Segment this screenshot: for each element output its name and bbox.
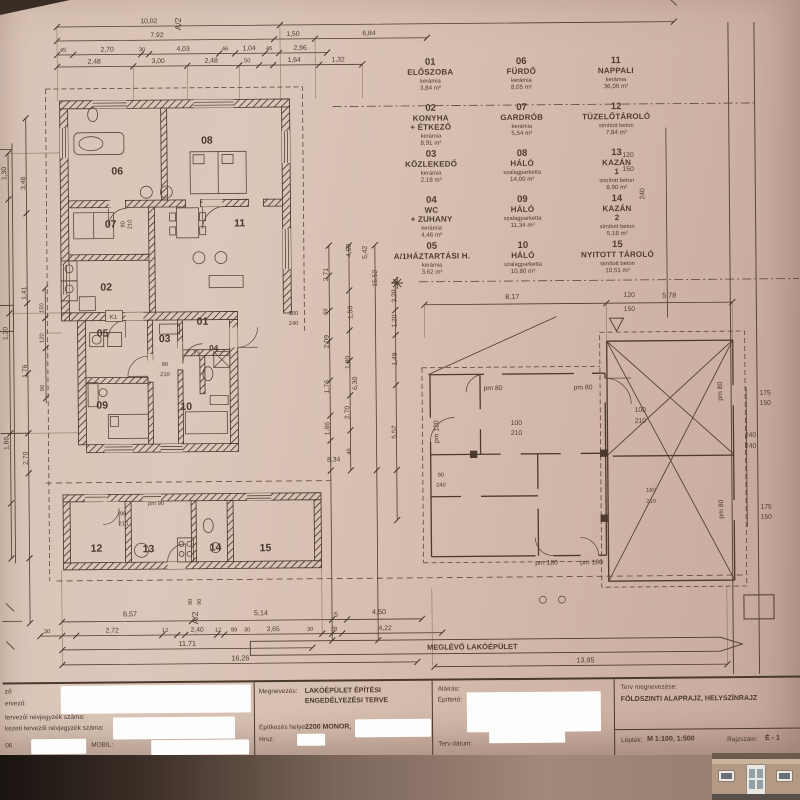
titleblock-rule [615, 727, 800, 730]
svg-text:1,50: 1,50 [286, 31, 300, 38]
svg-text:5,14: 5,14 [254, 608, 268, 617]
svg-text:2,96: 2,96 [293, 45, 307, 52]
svg-text:1,41: 1,41 [21, 286, 28, 300]
svg-text:1,04: 1,04 [242, 45, 256, 52]
hrsz-label: Hrsz: [259, 736, 274, 743]
svg-text:6,30: 6,30 [352, 377, 359, 391]
svg-text:16,26: 16,26 [231, 653, 249, 662]
svg-text:pm 80: pm 80 [718, 500, 725, 519]
svg-text:5,52: 5,52 [391, 425, 398, 439]
svg-text:12: 12 [91, 543, 103, 555]
drawing-title-label: Terv megnevezése: [621, 684, 677, 691]
svg-text:2,72: 2,72 [106, 627, 120, 634]
svg-text:210: 210 [160, 372, 170, 378]
scanned-floorplan-photo: { "schedule": { "rooms": [ {"num":"01","… [0, 0, 800, 800]
svg-text:45: 45 [60, 48, 67, 54]
project-name-line1: LAKÓÉPÜLET ÉPÍTÉSI [305, 687, 381, 695]
svg-text:30: 30 [44, 629, 51, 635]
svg-text:11,71: 11,71 [179, 639, 197, 648]
existing-building-label: MEGLÉVŐ LAKÓÉPÜLET [427, 642, 518, 652]
redaction-box [113, 716, 235, 739]
door-pane [749, 780, 755, 789]
designer-line4: kezeti tervezői névjegyzék száma: [5, 725, 104, 733]
project-name-line2: ENGEDÉLYEZÉSI TERVE [305, 697, 388, 705]
redaction-box [355, 719, 431, 738]
svg-text:15: 15 [260, 542, 272, 554]
svg-text:90: 90 [121, 221, 127, 228]
svg-text:3,00: 3,00 [152, 58, 166, 65]
svg-text:5,78: 5,78 [662, 291, 676, 300]
svg-text:14: 14 [210, 542, 222, 554]
svg-text:210: 210 [511, 430, 523, 437]
schedule-cell-09: 09HÁLÓszalagparketta11,34 m² [479, 195, 565, 242]
schedule-cell-01: 01ELŐSZOBAkerámia3,84 m² [382, 57, 478, 104]
svg-text:12: 12 [215, 628, 222, 634]
svg-text:pm 120: pm 120 [433, 420, 440, 443]
drawing-title-value: FÖLDSZINTI ALAPRAJZ, HELYSZÍNRAJZ [621, 695, 757, 703]
existing-building-band: MEGLÉVŐ LAKÓÉPÜLET [250, 637, 742, 655]
svg-text:8,17: 8,17 [505, 292, 519, 301]
existing-roof-diagonals [607, 340, 735, 581]
svg-text:7,92: 7,92 [150, 32, 164, 39]
redaction-box [489, 728, 565, 744]
redaction-box [31, 739, 86, 754]
redaction-box [467, 691, 601, 732]
svg-text:6,57: 6,57 [123, 609, 137, 618]
svg-text:150: 150 [624, 306, 636, 313]
plan-date-label: Terv dátum: [438, 740, 472, 747]
title-block: ző ervező: tervezői névjegyzék száma: ke… [3, 675, 800, 763]
scale-label: Lépték: [621, 737, 642, 744]
svg-text:04: 04 [209, 344, 219, 353]
svg-text:11: 11 [234, 217, 245, 229]
client-label: Építtető: [438, 696, 462, 703]
left-edge-marks [0, 143, 30, 649]
svg-text:28: 28 [331, 627, 338, 633]
svg-text:150: 150 [39, 303, 45, 313]
svg-text:08: 08 [201, 135, 213, 147]
schedule-cell-12: 12TÜZELŐTÁROLÓsimított beton7,84 m² [565, 102, 668, 149]
schedule-cell-13: 13KAZÁN1simított beton8,90 m² [565, 148, 668, 195]
site-photo-inset [712, 753, 800, 800]
svg-text:5,42: 5,42 [362, 245, 369, 259]
svg-text:240: 240 [436, 483, 446, 489]
door-pane [757, 769, 763, 778]
svg-text:175: 175 [759, 390, 771, 397]
svg-text:1,30: 1,30 [1, 167, 8, 181]
svg-text:02: 02 [100, 282, 112, 294]
scale-value: M 1:100, 1:500 [647, 735, 695, 742]
svg-text:69: 69 [323, 308, 329, 315]
schedule-cell-03: 03KÖZLEKEDŐkerámia2,18 m² [383, 149, 479, 196]
schedule-cell-10: 10HÁLÓszalagparketta10,80 m² [480, 241, 566, 288]
svg-text:05: 05 [97, 328, 109, 340]
svg-text:90: 90 [438, 473, 445, 479]
photo-window-left [718, 770, 735, 782]
svg-text:K1: K1 [110, 315, 118, 321]
svg-text:10,02: 10,02 [140, 18, 157, 25]
schedule-cell-04: 04WC+ ZUHANYkerámia4,46 m² [383, 195, 479, 242]
svg-text:240: 240 [289, 321, 299, 327]
svg-text:2,71: 2,71 [323, 268, 330, 282]
schedule-cell-05: 05A/1HÁZTARTÁSI H.kerámia3,62 m² [384, 241, 480, 288]
svg-text:4,50: 4,50 [372, 607, 386, 616]
svg-text:pm 180: pm 180 [535, 560, 558, 567]
designer-line1: ző [5, 688, 12, 695]
svg-text:2,40: 2,40 [191, 627, 205, 634]
schedule-cell-02: 02KONYHA+ ÉTKEZŐkerámia8,91 m² [383, 103, 479, 150]
svg-text:2,48: 2,48 [205, 58, 219, 65]
schedule-cell-14: 14KAZÁN2simított beton5,18 m² [565, 194, 668, 241]
door-pane [757, 780, 763, 789]
designer-line3: tervezői névjegyzék száma: [5, 714, 85, 722]
svg-text:30: 30 [307, 627, 314, 633]
existing-door-arcs [430, 373, 633, 604]
svg-text:07: 07 [105, 218, 117, 230]
svg-text:2,09: 2,09 [324, 335, 331, 349]
table-surface [0, 755, 800, 800]
schedule-cell-06: 06FÜRDŐkerámia8,05 m² [478, 57, 564, 104]
svg-text:90: 90 [120, 511, 127, 517]
svg-text:13: 13 [143, 543, 155, 555]
svg-text:pm 180: pm 180 [580, 559, 603, 566]
svg-text:100: 100 [511, 420, 523, 427]
drawing-number-label: Rajzszám: [727, 736, 757, 743]
svg-text:2,70: 2,70 [344, 406, 351, 420]
schedule-column-1: 01ELŐSZOBAkerámia3,84 m² 02KONYHA+ ÉTKEZ… [382, 57, 480, 288]
svg-text:240: 240 [745, 443, 757, 450]
svg-text:210: 210 [118, 521, 128, 527]
svg-text:180: 180 [646, 488, 656, 494]
svg-text:175: 175 [760, 504, 772, 511]
svg-text:15,52: 15,52 [372, 269, 379, 286]
svg-text:46: 46 [347, 448, 353, 455]
svg-text:1,20: 1,20 [3, 327, 10, 341]
svg-text:06: 06 [111, 165, 123, 177]
svg-text:210: 210 [635, 418, 647, 425]
redaction-box [151, 739, 249, 755]
svg-text:1,86: 1,86 [324, 422, 331, 436]
svg-text:2,70: 2,70 [23, 451, 30, 465]
svg-text:1,20: 1,20 [391, 314, 398, 328]
svg-text:A/2: A/2 [173, 17, 183, 30]
site-label: Építkezés helye: [259, 724, 307, 731]
titleblock-project-cell: Megnevezés: LAKÓÉPÜLET ÉPÍTÉSI ENGEDÉLYE… [255, 681, 434, 760]
drawing-area: MEGLÉVŐ LAKÓÉPÜLET 10,02 7,92 1,50 6,84 … [0, 0, 800, 760]
schedule-cell-15: 15NYITOTT TÁROLÓsimított beton10,51 m² [566, 240, 669, 287]
photo-entry-door [746, 764, 766, 795]
svg-text:150: 150 [761, 514, 773, 521]
svg-text:6,84: 6,84 [362, 30, 376, 37]
svg-text:30: 30 [139, 47, 146, 53]
schedule-cell-07: 07GARDRÓBkerámia5,54 m² [479, 103, 565, 150]
svg-text:12: 12 [162, 628, 169, 634]
redaction-box [297, 734, 325, 746]
svg-text:30: 30 [244, 627, 251, 633]
svg-text:210: 210 [646, 499, 656, 505]
svg-text:pm 90: pm 90 [148, 501, 164, 507]
designer-line5a: 06 [5, 742, 12, 749]
svg-text:pm 80: pm 80 [717, 382, 724, 401]
svg-text:240: 240 [745, 432, 757, 439]
svg-text:1,49: 1,49 [392, 352, 399, 366]
schedule-column-2: 06FÜRDŐkerámia8,05 m² 07GARDRÓBkerámia5,… [478, 57, 566, 288]
svg-text:3,65: 3,65 [267, 626, 281, 633]
svg-text:4,50: 4,50 [346, 244, 353, 258]
window-glass [779, 773, 790, 779]
svg-text:1,32: 1,32 [332, 56, 346, 63]
redaction-box [61, 684, 251, 714]
drawing-number-value: É - 1 [765, 735, 780, 742]
room-name: ELŐSZOBA [382, 68, 478, 78]
svg-text:1,80: 1,80 [345, 356, 352, 370]
svg-text:13,95: 13,95 [576, 655, 594, 664]
svg-text:pm 80: pm 80 [484, 385, 503, 392]
svg-text:46: 46 [222, 46, 229, 52]
svg-text:100: 100 [635, 407, 647, 414]
schedule-cell-11: 11NAPPALIkerámia36,09 m² [564, 56, 667, 103]
svg-text:100: 100 [289, 311, 299, 317]
svg-text:2,70: 2,70 [100, 46, 114, 53]
svg-text:3,20: 3,20 [391, 289, 398, 303]
svg-text:120: 120 [40, 333, 46, 343]
titleblock-signature-cell: Aláírás: Építtető: Terv dátum: [433, 679, 616, 758]
svg-text:09: 09 [96, 400, 108, 412]
svg-text:90: 90 [162, 362, 169, 368]
window-glass [721, 773, 732, 779]
svg-text:1,64: 1,64 [288, 57, 302, 64]
titleblock-drawing-cell: Terv megnevezése: FÖLDSZINTI ALAPRAJZ, H… [615, 677, 800, 756]
svg-text:A/2: A/2 [190, 611, 200, 624]
svg-text:1,50: 1,50 [347, 306, 354, 320]
svg-text:210: 210 [128, 219, 134, 229]
svg-text:pm 80: pm 80 [574, 384, 593, 391]
schedule-cell-08: 08HÁLÓszalagparketta14,00 m² [479, 149, 565, 196]
room-schedule: 01ELŐSZOBAkerámia3,84 m² 02KONYHA+ ÉTKEZ… [382, 56, 669, 288]
svg-text:90: 90 [197, 599, 203, 605]
schedule-column-3: 11NAPPALIkerámia36,09 m² 12TÜZELŐTÁROLÓs… [564, 56, 669, 287]
door-pane [749, 769, 755, 778]
svg-text:3,48: 3,48 [20, 176, 27, 190]
svg-text:10: 10 [180, 401, 192, 413]
svg-text:8,34: 8,34 [327, 457, 341, 464]
titleblock-designer-cell: ző ervező: tervezői névjegyzék száma: ke… [3, 682, 256, 761]
designer-line2: ervező: [5, 700, 26, 707]
project-name-label: Megnevezés: [259, 688, 298, 695]
svg-text:4,03: 4,03 [176, 46, 190, 53]
svg-text:75: 75 [194, 351, 201, 357]
svg-text:1,76: 1,76 [324, 380, 331, 394]
photo-plinth [712, 794, 800, 800]
svg-text:90: 90 [188, 599, 194, 605]
svg-text:5: 5 [334, 612, 338, 619]
svg-text:50: 50 [244, 58, 251, 64]
photo-window-right [776, 770, 793, 782]
svg-text:90: 90 [40, 385, 46, 392]
svg-text:01: 01 [197, 316, 209, 328]
site-value: 2200 MONOR, [305, 723, 351, 730]
svg-text:89: 89 [231, 627, 238, 633]
room-area: 3,84 m² [382, 85, 478, 93]
svg-text:46: 46 [266, 46, 273, 52]
svg-text:120: 120 [624, 292, 636, 299]
svg-text:03: 03 [159, 333, 171, 345]
signature-label: Aláírás: [438, 685, 460, 692]
svg-text:1,86: 1,86 [3, 437, 10, 451]
svg-text:1,76: 1,76 [22, 364, 29, 378]
svg-text:2,48: 2,48 [88, 59, 102, 66]
designer-line5b: MOBIL: [91, 742, 113, 749]
svg-text:150: 150 [760, 400, 772, 407]
svg-text:4,22: 4,22 [379, 625, 393, 632]
